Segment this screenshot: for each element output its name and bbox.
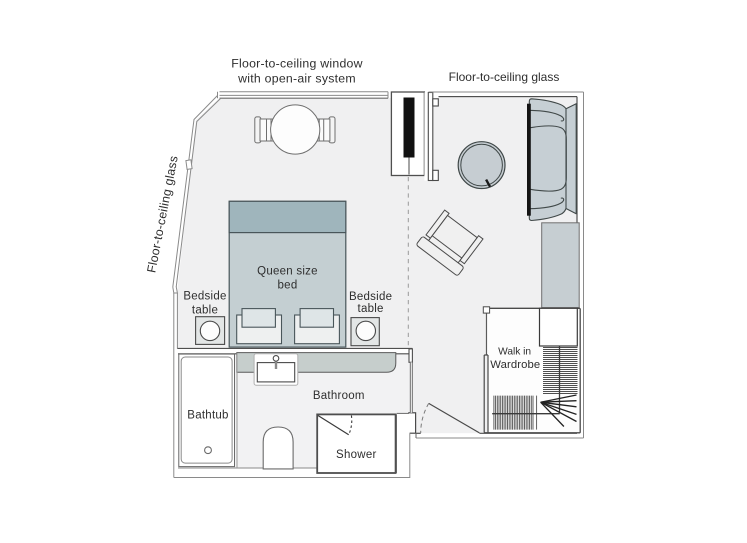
svg-text:table: table <box>358 303 384 315</box>
svg-text:with open-air system: with open-air system <box>237 72 356 86</box>
svg-text:Bathtub: Bathtub <box>187 410 228 422</box>
svg-text:Bathroom: Bathroom <box>313 390 365 402</box>
svg-text:Floor-to-ceiling glass: Floor-to-ceiling glass <box>449 70 560 84</box>
svg-text:Wardrobe: Wardrobe <box>490 359 540 371</box>
svg-text:Walk in: Walk in <box>498 346 531 357</box>
svg-text:bed: bed <box>278 280 298 292</box>
svg-text:Bedside: Bedside <box>183 291 226 303</box>
svg-text:Shower: Shower <box>336 449 377 461</box>
svg-text:Queen size: Queen size <box>257 266 318 278</box>
svg-text:Bedside: Bedside <box>349 291 392 303</box>
svg-text:table: table <box>192 305 218 317</box>
svg-text:Floor-to-ceiling window: Floor-to-ceiling window <box>231 57 363 71</box>
